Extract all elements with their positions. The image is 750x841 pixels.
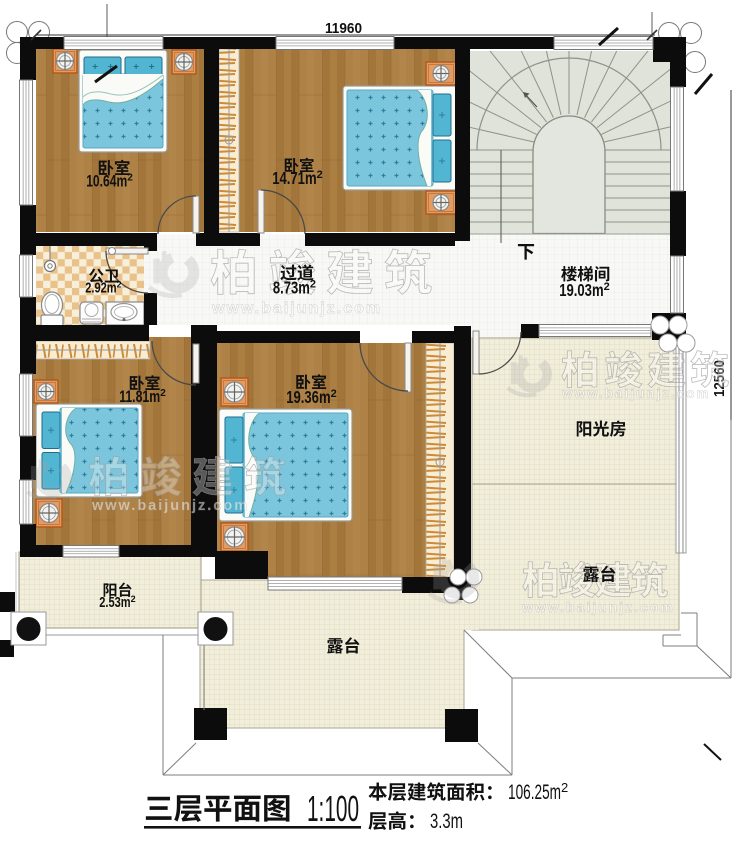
svg-text:www.baijunjz.com: www.baijunjz.com — [211, 300, 382, 317]
svg-text:2.92m2: 2.92m2 — [85, 279, 121, 296]
svg-text:11.81m2: 11.81m2 — [119, 387, 166, 406]
svg-text:106.25m2: 106.25m2 — [508, 780, 568, 804]
svg-text:1:100: 1:100 — [307, 788, 359, 829]
svg-text:14.71m2: 14.71m2 — [272, 168, 323, 188]
svg-text:19.03m2: 19.03m2 — [559, 280, 610, 300]
svg-text:3.3m: 3.3m — [430, 810, 463, 833]
svg-text:19.36m2: 19.36m2 — [286, 387, 337, 407]
svg-text:2.53m2: 2.53m2 — [99, 594, 135, 611]
svg-text:www.baijunjz.com: www.baijunjz.com — [91, 498, 249, 514]
svg-text:www.baijunjz.com: www.baijunjz.com — [521, 599, 675, 615]
svg-text:11960: 11960 — [325, 20, 362, 37]
svg-text:www.baijunjz.com: www.baijunjz.com — [561, 386, 711, 401]
svg-text:8.73m2: 8.73m2 — [273, 278, 316, 298]
svg-text:10.64m2: 10.64m2 — [86, 172, 133, 191]
